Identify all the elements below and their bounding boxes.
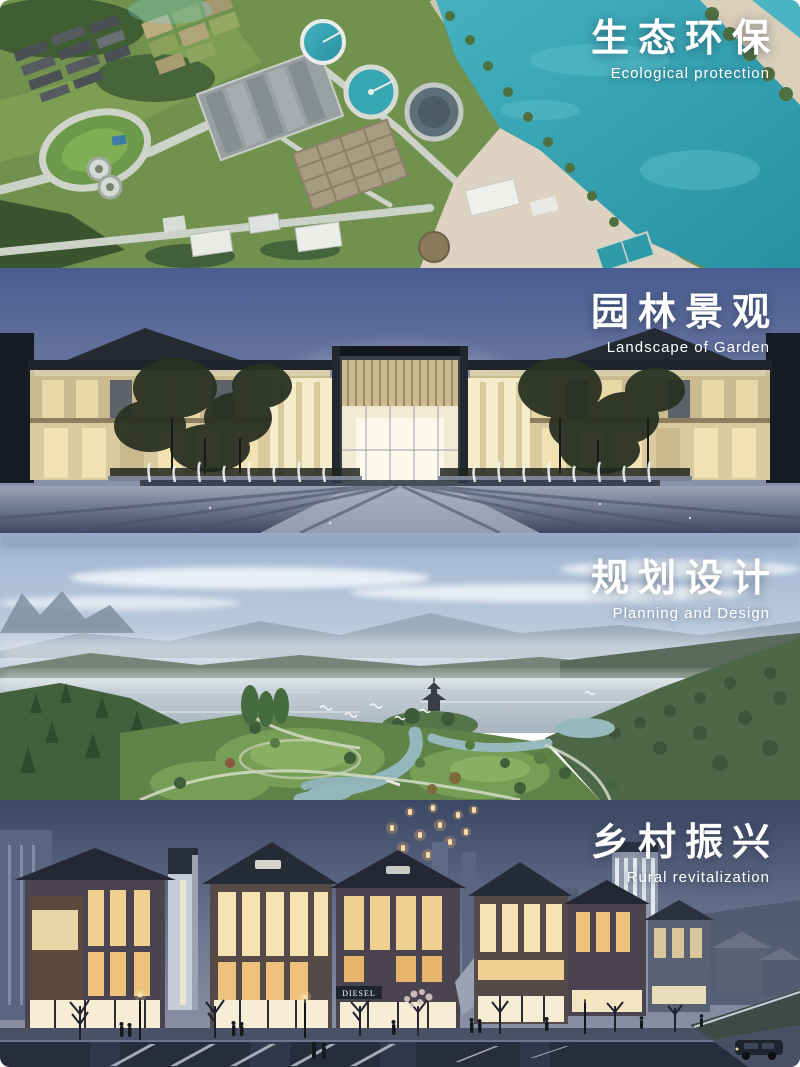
night-clubhouse-photo bbox=[0, 268, 800, 533]
park-masterplan-rendering bbox=[0, 533, 800, 800]
section-ecological-protection: 生态环保 Ecological protection bbox=[0, 0, 800, 268]
lagoon bbox=[555, 718, 615, 738]
right-edge-building bbox=[766, 333, 800, 483]
left-edge-building bbox=[0, 333, 34, 483]
section-planning-and-design: 规划设计 Planning and Design bbox=[0, 533, 800, 800]
cloud-band bbox=[0, 533, 800, 549]
fountain-basin bbox=[140, 480, 660, 486]
section-landscape-of-garden: 园林景观 Landscape of Garden bbox=[0, 268, 800, 533]
section-rural-revitalization: DIESEL bbox=[0, 800, 800, 1067]
round-building bbox=[419, 232, 449, 262]
central-atrium bbox=[332, 346, 468, 489]
aerial-treatment-plant-photo bbox=[0, 0, 800, 268]
white-chimney-tower bbox=[168, 848, 198, 1010]
dusk-commercial-street-rendering: DIESEL bbox=[0, 800, 800, 1067]
storefront-sign-text: DIESEL bbox=[342, 989, 376, 998]
four-panel-landscape-poster: 生态环保 Ecological protection bbox=[0, 0, 800, 1067]
